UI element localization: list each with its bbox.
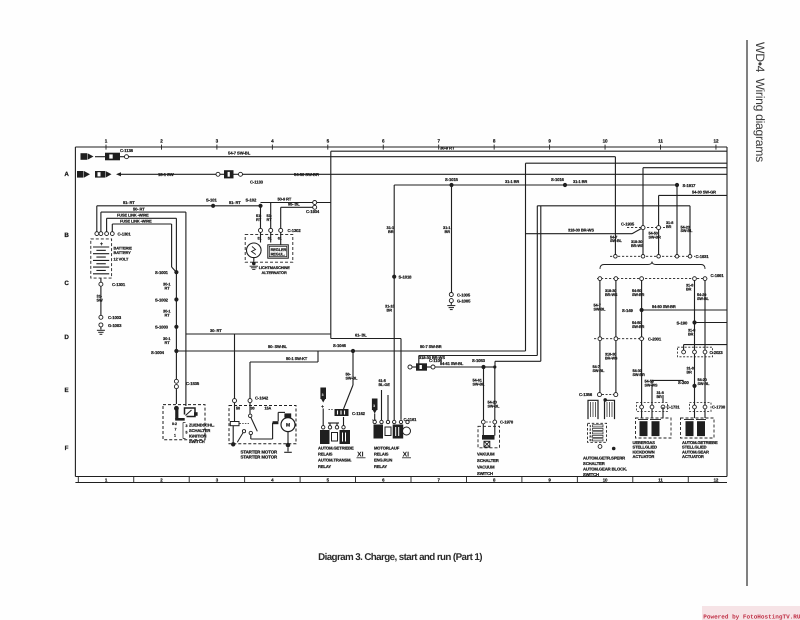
- svg-text:SCHALTER: SCHALTER: [189, 428, 210, 433]
- svg-text:S-1046: S-1046: [333, 343, 347, 348]
- svg-text:A: A: [64, 171, 69, 178]
- svg-text:ACTUATOR: ACTUATOR: [633, 454, 655, 459]
- svg-text:318-30 BR-WS: 318-30 BR-WS: [568, 228, 594, 233]
- svg-text:50- SW-BL: 50- SW-BL: [268, 344, 288, 349]
- svg-text:12 VOLT: 12 VOLT: [114, 257, 130, 262]
- svg-text:AUTOM.GETRIEBE: AUTOM.GETRIEBE: [318, 445, 354, 450]
- svg-text:C-1302: C-1302: [288, 228, 302, 233]
- svg-text:11: 11: [658, 139, 663, 144]
- svg-text:SW-BL: SW-BL: [473, 382, 486, 386]
- svg-text:C-1934: C-1934: [306, 209, 320, 214]
- svg-text:S-1002: S-1002: [155, 297, 169, 302]
- svg-text:C-1162: C-1162: [352, 411, 366, 416]
- svg-text:C-1133: C-1133: [250, 180, 264, 185]
- svg-text:C-1356: C-1356: [579, 392, 593, 397]
- svg-text:C-1731: C-1731: [667, 405, 681, 410]
- svg-text:5: 5: [186, 431, 188, 435]
- svg-text:30-9 RT: 30-9 RT: [440, 145, 455, 150]
- svg-text:SCHALTER: SCHALTER: [583, 461, 605, 466]
- svg-text:C-1138: C-1138: [120, 148, 134, 153]
- svg-text:ZUENDSCHL.: ZUENDSCHL.: [189, 423, 214, 428]
- svg-text:SWITCH: SWITCH: [477, 471, 493, 476]
- svg-text:SW-BL: SW-BL: [594, 307, 607, 311]
- svg-text:S-190: S-190: [677, 320, 688, 325]
- svg-text:BR: BR: [445, 229, 451, 234]
- svg-text:C-2023: C-2023: [710, 350, 724, 355]
- svg-text:C-2001: C-2001: [648, 337, 662, 342]
- svg-text:C-1642: C-1642: [255, 396, 269, 401]
- svg-text:+: +: [100, 241, 103, 247]
- svg-text:RT: RT: [165, 286, 171, 291]
- svg-text:RT: RT: [267, 217, 273, 222]
- svg-text:15A: 15A: [265, 406, 272, 410]
- svg-text:11: 11: [658, 477, 663, 482]
- svg-text:C-1301: C-1301: [118, 232, 132, 237]
- svg-text:B: B: [64, 232, 69, 239]
- svg-text:AUTOM.GETR.SPERR: AUTOM.GETR.SPERR: [583, 456, 625, 461]
- svg-text:REGUL.: REGUL.: [271, 252, 285, 257]
- svg-text:3: 3: [322, 393, 324, 397]
- svg-text:ALTERNATOR: ALTERNATOR: [262, 270, 287, 275]
- svg-text:C-1161: C-1161: [404, 417, 418, 422]
- svg-text:10: 10: [603, 139, 608, 144]
- svg-text:30: 30: [251, 406, 255, 410]
- svg-text:S-1917: S-1917: [683, 183, 697, 188]
- svg-text:SW-WS: SW-WS: [645, 383, 658, 387]
- svg-text:S-1016: S-1016: [551, 177, 565, 182]
- svg-text:54-50 SW-BR: 54-50 SW-BR: [294, 172, 319, 177]
- svg-text:SW-BL: SW-BL: [346, 376, 359, 380]
- svg-text:Powered by FotoHostingTV.RU: Powered by FotoHostingTV.RU: [703, 614, 800, 620]
- svg-text:S-1003: S-1003: [155, 325, 169, 330]
- svg-text:FUSE LINK -WIRE: FUSE LINK -WIRE: [120, 218, 152, 223]
- svg-text:RELAY: RELAY: [318, 464, 331, 469]
- svg-text:C-1935: C-1935: [621, 221, 635, 226]
- svg-text:SW-BR: SW-BR: [632, 325, 645, 329]
- svg-text:54-7 SW-BL: 54-7 SW-BL: [228, 151, 251, 156]
- svg-text:95- BL: 95- BL: [288, 202, 300, 207]
- svg-text:SWITCH: SWITCH: [189, 439, 205, 444]
- svg-text:C-1730: C-1730: [712, 405, 726, 410]
- svg-text:SW-BR: SW-BR: [649, 235, 662, 239]
- svg-text:BR-WS: BR-WS: [605, 293, 618, 297]
- svg-text:BATTERY: BATTERY: [114, 250, 132, 255]
- svg-text:D: D: [590, 438, 592, 442]
- svg-text:0-2: 0-2: [172, 422, 177, 426]
- svg-text:S-1018: S-1018: [399, 275, 413, 280]
- svg-text:RT: RT: [165, 313, 171, 318]
- svg-text:STARTER MOTOR: STARTER MOTOR: [241, 455, 279, 460]
- svg-text:54-50 SW-BR: 54-50 SW-BR: [652, 304, 676, 309]
- svg-text:15-1 SW: 15-1 SW: [158, 172, 174, 177]
- svg-text:51- RT: 51- RT: [123, 200, 135, 205]
- svg-text:AUTOM.TRANSM.: AUTOM.TRANSM.: [318, 458, 351, 463]
- svg-text:RT: RT: [256, 217, 262, 222]
- svg-text:50: 50: [236, 406, 240, 410]
- svg-text:SW-BL: SW-BL: [697, 297, 710, 301]
- svg-text:S-101: S-101: [206, 198, 217, 203]
- svg-text:BR: BR: [666, 225, 672, 229]
- svg-text:ENG.RUN: ENG.RUN: [374, 458, 392, 463]
- svg-text:S-1004: S-1004: [151, 350, 165, 355]
- svg-text:C: C: [64, 280, 69, 287]
- svg-text:31-1 BR: 31-1 BR: [573, 179, 587, 184]
- svg-text:SW-BL: SW-BL: [698, 382, 711, 386]
- svg-text:BR: BR: [687, 370, 693, 374]
- svg-text:WD•4 Wiring diagrams: WD•4 Wiring diagrams: [753, 42, 767, 162]
- svg-text:54-61 SW-BL: 54-61 SW-BL: [440, 361, 464, 366]
- svg-text:50- RT: 50- RT: [133, 206, 145, 211]
- svg-text:SW-BL: SW-BL: [610, 239, 623, 243]
- svg-text:BR: BR: [686, 287, 692, 291]
- svg-text:G-1003: G-1003: [108, 323, 122, 328]
- svg-text:BR: BR: [387, 308, 393, 313]
- svg-text:C-1931: C-1931: [696, 254, 710, 259]
- svg-text:51- RT: 51- RT: [229, 200, 241, 205]
- svg-text:S-1001: S-1001: [155, 270, 169, 275]
- svg-text:SWITCH: SWITCH: [583, 472, 599, 477]
- svg-text:SCHALTER: SCHALTER: [477, 458, 499, 463]
- svg-text:VAKUUM: VAKUUM: [477, 452, 495, 457]
- svg-text:G-1005: G-1005: [457, 299, 471, 304]
- svg-text:C-1301: C-1301: [112, 282, 126, 287]
- svg-text:S-102: S-102: [246, 198, 257, 203]
- svg-text:S-1015: S-1015: [445, 177, 459, 182]
- svg-text:54-30 SW-GR: 54-30 SW-GR: [692, 189, 716, 194]
- svg-text:SW: SW: [97, 298, 103, 303]
- svg-text:50-1 SW-KT: 50-1 SW-KT: [286, 356, 308, 361]
- svg-text:BL-GE: BL-GE: [379, 383, 391, 387]
- svg-text:F: F: [65, 445, 69, 452]
- svg-text:RELAY: RELAY: [374, 464, 387, 469]
- svg-text:3: 3: [373, 404, 375, 408]
- svg-text:3: 3: [186, 424, 188, 428]
- svg-text:61- BL: 61- BL: [355, 332, 367, 337]
- svg-text:M: M: [286, 423, 290, 429]
- svg-text:SW-BR: SW-BR: [632, 293, 645, 297]
- svg-text:10: 10: [603, 477, 608, 482]
- svg-text:BR-WS: BR-WS: [605, 356, 618, 360]
- svg-text:31-1 BR: 31-1 BR: [505, 179, 519, 184]
- svg-text:SW-BL: SW-BL: [488, 404, 501, 408]
- svg-text:C-1535: C-1535: [186, 381, 200, 386]
- svg-text:RELAIS: RELAIS: [374, 452, 389, 457]
- svg-text:MOTORLAUF: MOTORLAUF: [374, 445, 400, 450]
- svg-text:BR-WS: BR-WS: [631, 244, 644, 248]
- svg-text:12: 12: [714, 477, 719, 482]
- svg-text:S-149: S-149: [622, 308, 633, 313]
- svg-text:S-1053: S-1053: [472, 358, 486, 363]
- svg-text:AUTOM.GEAR BLOCK.: AUTOM.GEAR BLOCK.: [583, 467, 627, 472]
- svg-text:1: 1: [174, 434, 176, 438]
- svg-text:SW-BL: SW-BL: [593, 369, 606, 373]
- svg-text:SW-BL: SW-BL: [681, 229, 694, 233]
- svg-text:Diagram 3. Charge, start and r: Diagram 3. Charge, start and run (Part 1…: [318, 552, 482, 563]
- svg-text:E: E: [64, 387, 68, 394]
- svg-text:C-1970: C-1970: [500, 420, 514, 425]
- svg-text:BR: BR: [657, 395, 663, 399]
- svg-text:30- RT: 30- RT: [210, 328, 222, 333]
- svg-text:C-1005: C-1005: [457, 292, 471, 297]
- svg-text:50-7 SW-BR: 50-7 SW-BR: [420, 344, 442, 349]
- svg-text:VACUUM: VACUUM: [477, 465, 495, 470]
- svg-text:C-1003: C-1003: [108, 315, 122, 320]
- svg-text:C-1991: C-1991: [711, 273, 725, 278]
- svg-text:BR: BR: [388, 229, 394, 234]
- svg-text:7: 7: [175, 428, 177, 432]
- svg-text:BR: BR: [688, 332, 694, 336]
- svg-text:RT: RT: [165, 340, 171, 345]
- svg-text:ACTUATOR: ACTUATOR: [682, 454, 704, 459]
- svg-text:RELAIS: RELAIS: [318, 452, 333, 457]
- svg-text:IGNITION: IGNITION: [189, 433, 207, 438]
- svg-text:12: 12: [713, 139, 718, 144]
- svg-text:FUSE LINK -WIRE: FUSE LINK -WIRE: [117, 213, 149, 218]
- svg-text:SW-BR: SW-BR: [633, 373, 646, 377]
- svg-text:D: D: [64, 334, 69, 341]
